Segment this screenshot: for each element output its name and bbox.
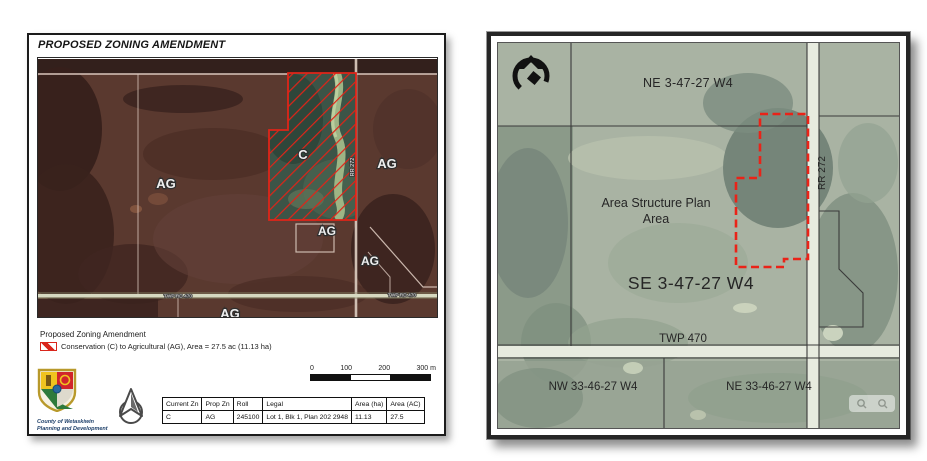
- scale-tick-100: 100: [340, 365, 352, 372]
- north-arrow-icon: [113, 387, 149, 427]
- road-label-twp-left: TWP RD 470: [164, 294, 192, 300]
- road-label-rr272: RR 272: [350, 158, 356, 177]
- legend-heading: Proposed Zoning Amendment: [40, 330, 146, 339]
- scale-bar-ticks: 0 100 200 300 m: [310, 365, 436, 372]
- label-se-quarter: SE 3-47-27 W4: [628, 273, 754, 293]
- label-asp-line1: Area Structure Plan: [601, 196, 710, 210]
- label-rr-272: RR 272: [817, 156, 828, 190]
- scale-bar: 0 100 200 300 m: [310, 365, 436, 381]
- col-roll: Roll: [233, 398, 263, 411]
- scale-segment-white: [351, 375, 391, 380]
- legend-item: Conservation (C) to Agricultural (AG), A…: [40, 342, 272, 351]
- scale-tick-0: 0: [310, 365, 314, 372]
- col-current-zn: Current Zn: [163, 398, 202, 411]
- county-department: Planning and Development: [37, 426, 129, 433]
- asp-map-canvas: NE 3-47-27 W4 Area Structure Plan Area S…: [497, 42, 900, 429]
- cell-area-ac: 27.5: [387, 411, 424, 424]
- table-header-row: Current Zn Prop Zn Roll Legal Area (ha) …: [163, 398, 425, 411]
- rezoning-swatch-icon: [40, 342, 57, 351]
- cell-roll: 245100: [233, 411, 263, 424]
- zone-label-ag-south-small: AG: [318, 224, 336, 238]
- zone-label-c: C: [298, 147, 308, 162]
- zoning-amendment-map-frame: PROPOSED ZONING AMENDMENT: [27, 33, 446, 436]
- scale-segment-black-2: [390, 375, 430, 380]
- aerial-imagery: [38, 59, 438, 318]
- col-area-ha: Area (ha): [351, 398, 386, 411]
- col-area-ac: Area (AC): [387, 398, 424, 411]
- cell-prop-zn: AG: [202, 411, 233, 424]
- road-label-twp-right: TWP RD 470: [388, 293, 416, 299]
- left-map-title: PROPOSED ZONING AMENDMENT: [38, 39, 225, 51]
- asp-map-svg: NE 3-47-27 W4 Area Structure Plan Area S…: [498, 43, 900, 429]
- scale-bar-segments: [310, 374, 431, 381]
- aerial-imagery: [498, 43, 900, 429]
- label-nw33-quarter: NW 33-46-27 W4: [549, 381, 638, 393]
- scale-tick-300: 300 m: [417, 365, 436, 372]
- cell-area-ha: 11.13: [351, 411, 386, 424]
- zoning-map-svg: AG AG C AG AG AG RR 272 TWP RD 470 TWP R…: [38, 58, 438, 318]
- zoning-summary-table: Current Zn Prop Zn Roll Legal Area (ha) …: [162, 397, 425, 424]
- scale-segment-black-1: [311, 375, 351, 380]
- zone-label-ag-east: AG: [377, 156, 397, 171]
- cell-legal: Lot 1, Blk 1, Plan 202 2948: [263, 411, 352, 424]
- zone-label-ag-bottom: AG: [220, 306, 240, 318]
- scale-tick-200: 200: [378, 365, 390, 372]
- area-structure-plan-map-frame: NE 3-47-27 W4 Area Structure Plan Area S…: [487, 32, 910, 439]
- label-asp-line2: Area: [643, 212, 669, 226]
- col-prop-zn: Prop Zn: [202, 398, 233, 411]
- zoning-map-canvas: AG AG C AG AG AG RR 272 TWP RD 470 TWP R…: [37, 57, 438, 318]
- zone-label-ag-west: AG: [156, 176, 176, 191]
- cell-current-zn: C: [163, 411, 202, 424]
- zone-label-ag-southeast: AG: [361, 254, 379, 268]
- county-crest-icon: [37, 368, 77, 412]
- label-twp-470: TWP 470: [659, 333, 707, 345]
- legend-item-label: Conservation (C) to Agricultural (AG), A…: [61, 342, 272, 351]
- table-row: C AG 245100 Lot 1, Blk 1, Plan 202 2948 …: [163, 411, 425, 424]
- label-ne33-quarter: NE 33-46-27 W4: [726, 381, 812, 393]
- label-ne-quarter: NE 3-47-27 W4: [643, 76, 733, 90]
- col-legal: Legal: [263, 398, 352, 411]
- map-zoom-control[interactable]: [849, 395, 895, 412]
